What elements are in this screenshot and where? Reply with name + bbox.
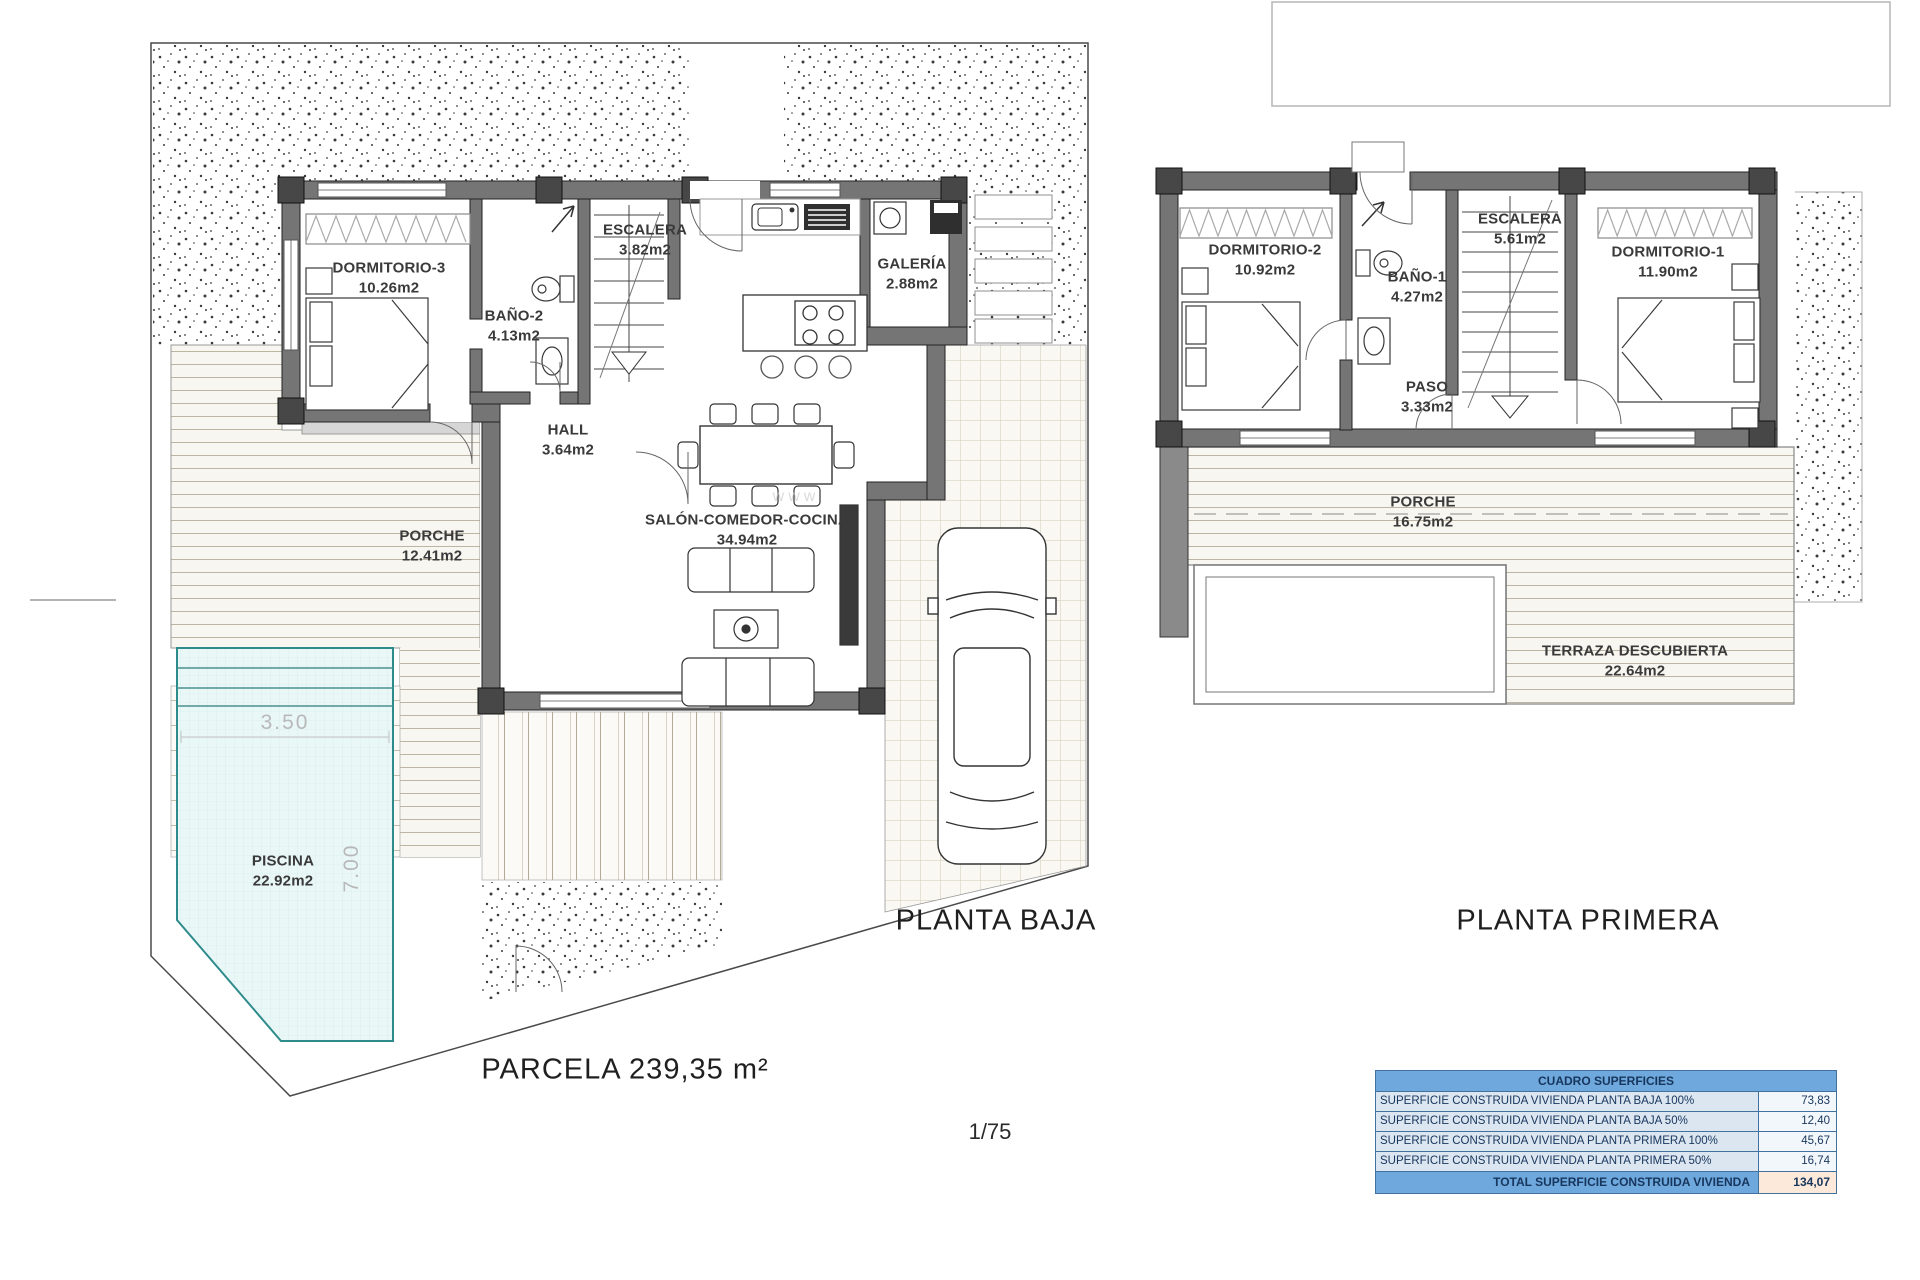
room-area: 4.13m2 bbox=[485, 326, 544, 346]
row-label: SUPERFICIE CONSTRUIDA VIVIENDA PLANTA PR… bbox=[1376, 1132, 1758, 1151]
plank-path bbox=[482, 712, 722, 880]
room-name: PORCHE bbox=[1390, 493, 1455, 513]
pool-width-dim: 3.50 bbox=[261, 711, 310, 735]
entry-opening bbox=[690, 181, 760, 199]
label-bano1: BAÑO-1 4.27m2 bbox=[1388, 268, 1447, 307]
label-bano2: BAÑO-2 4.13m2 bbox=[485, 307, 544, 346]
pool-depth-dim: 7.00 bbox=[340, 844, 364, 893]
table-total-row: TOTAL SUPERFICIE CONSTRUIDA VIVIENDA 134… bbox=[1376, 1171, 1836, 1193]
room-name: SALÓN-COMEDOR-COCINA bbox=[645, 511, 849, 531]
label-dormitorio2: DORMITORIO-2 10.92m2 bbox=[1209, 241, 1322, 280]
title-block-box bbox=[1272, 2, 1890, 106]
room-area: 22.92m2 bbox=[252, 871, 314, 891]
deck-side-wall bbox=[1160, 447, 1188, 637]
watermark: www bbox=[773, 488, 820, 506]
room-area: 3.33m2 bbox=[1401, 397, 1453, 417]
floor-plan-sheet: DORMITORIO-3 10.26m2 BAÑO-2 4.13m2 ESCAL… bbox=[0, 0, 1920, 1280]
room-area: 3.82m2 bbox=[603, 240, 687, 260]
room-area: 10.92m2 bbox=[1209, 260, 1322, 280]
table-header-row: CUADRO SUPERFICIES bbox=[1376, 1071, 1836, 1091]
label-porche-baja: PORCHE 12.41m2 bbox=[399, 527, 464, 566]
label-dormitorio1: DORMITORIO-1 11.90m2 bbox=[1612, 243, 1725, 282]
table-row: SUPERFICIE CONSTRUIDA VIVIENDA PLANTA PR… bbox=[1376, 1131, 1836, 1151]
room-area: 2.88m2 bbox=[878, 274, 947, 294]
room-name: TERRAZA DESCUBIERTA bbox=[1542, 642, 1728, 662]
room-area: 4.27m2 bbox=[1388, 287, 1447, 307]
label-terraza: TERRAZA DESCUBIERTA 22.64m2 bbox=[1542, 642, 1728, 681]
row-value: 12,40 bbox=[1758, 1112, 1836, 1131]
room-name: PASO bbox=[1401, 378, 1453, 398]
stepping-slabs bbox=[975, 195, 1052, 343]
lower-roof bbox=[1194, 565, 1506, 704]
room-area: 10.26m2 bbox=[333, 278, 446, 298]
room-name: PORCHE bbox=[399, 527, 464, 547]
room-name: DORMITORIO-2 bbox=[1209, 241, 1322, 261]
room-area: 34.94m2 bbox=[645, 530, 849, 550]
kitchen-counter bbox=[700, 199, 860, 235]
room-name: BAÑO-1 bbox=[1388, 268, 1447, 288]
label-piscina: PISCINA 22.92m2 bbox=[252, 852, 314, 891]
label-escalera-primera: ESCALERA 5.61m2 bbox=[1478, 210, 1562, 249]
label-dormitorio3: DORMITORIO-3 10.26m2 bbox=[333, 259, 446, 298]
label-hall: HALL 3.64m2 bbox=[542, 421, 594, 460]
hob-icon bbox=[795, 301, 855, 345]
label-paso: PASO 3.33m2 bbox=[1401, 378, 1453, 417]
plan-title-baja: PLANTA BAJA bbox=[896, 905, 1097, 938]
parcela-label: PARCELA 239,35 m² bbox=[481, 1054, 768, 1087]
porch-step bbox=[302, 422, 480, 434]
room-area: 5.61m2 bbox=[1478, 229, 1562, 249]
room-area: 16.75m2 bbox=[1390, 512, 1455, 532]
scale-label: 1/75 bbox=[969, 1119, 1012, 1145]
table-row: SUPERFICIE CONSTRUIDA VIVIENDA PLANTA BA… bbox=[1376, 1111, 1836, 1131]
table-title: CUADRO SUPERFICIES bbox=[1376, 1071, 1836, 1091]
total-label: TOTAL SUPERFICIE CONSTRUIDA VIVIENDA bbox=[1376, 1172, 1758, 1193]
surfaces-table: CUADRO SUPERFICIES SUPERFICIE CONSTRUIDA… bbox=[1375, 1070, 1837, 1194]
room-name: BAÑO-2 bbox=[485, 307, 544, 327]
row-value: 45,67 bbox=[1758, 1132, 1836, 1151]
row-value: 16,74 bbox=[1758, 1152, 1836, 1171]
row-label: SUPERFICIE CONSTRUIDA VIVIENDA PLANTA BA… bbox=[1376, 1112, 1758, 1131]
label-porche-primera: PORCHE 16.75m2 bbox=[1390, 493, 1455, 532]
label-galeria: GALERÍA 2.88m2 bbox=[878, 255, 947, 294]
table-row: SUPERFICIE CONSTRUIDA VIVIENDA PLANTA PR… bbox=[1376, 1151, 1836, 1171]
mirror-icon bbox=[1046, 598, 1056, 614]
room-name: ESCALERA bbox=[603, 221, 687, 241]
plan-title-primera: PLANTA PRIMERA bbox=[1456, 905, 1719, 938]
entry-canopy bbox=[1352, 142, 1404, 172]
row-value: 73,83 bbox=[1758, 1092, 1836, 1111]
table-row: SUPERFICIE CONSTRUIDA VIVIENDA PLANTA BA… bbox=[1376, 1091, 1836, 1111]
row-label: SUPERFICIE CONSTRUIDA VIVIENDA PLANTA PR… bbox=[1376, 1152, 1758, 1171]
terraza-deck bbox=[1506, 565, 1794, 704]
total-value: 134,07 bbox=[1758, 1172, 1836, 1193]
row-label: SUPERFICIE CONSTRUIDA VIVIENDA PLANTA BA… bbox=[1376, 1092, 1758, 1111]
room-name: ESCALERA bbox=[1478, 210, 1562, 230]
kitchen-island bbox=[743, 295, 867, 378]
room-area: 11.90m2 bbox=[1612, 262, 1725, 282]
room-area: 12.41m2 bbox=[399, 546, 464, 566]
room-name: DORMITORIO-1 bbox=[1612, 243, 1725, 263]
room-area: 22.64m2 bbox=[1542, 661, 1728, 681]
car bbox=[928, 528, 1056, 864]
label-escalera-baja: ESCALERA 3.82m2 bbox=[603, 221, 687, 260]
room-name: GALERÍA bbox=[878, 255, 947, 275]
room-name: PISCINA bbox=[252, 852, 314, 872]
room-name: HALL bbox=[542, 421, 594, 441]
label-salon: SALÓN-COMEDOR-COCINA 34.94m2 bbox=[645, 511, 849, 550]
washer-icon bbox=[874, 202, 906, 234]
room-name: DORMITORIO-3 bbox=[333, 259, 446, 279]
room-area: 3.64m2 bbox=[542, 440, 594, 460]
drainer-icon bbox=[804, 204, 850, 230]
mirror-icon bbox=[928, 598, 938, 614]
entry-path bbox=[690, 45, 784, 181]
